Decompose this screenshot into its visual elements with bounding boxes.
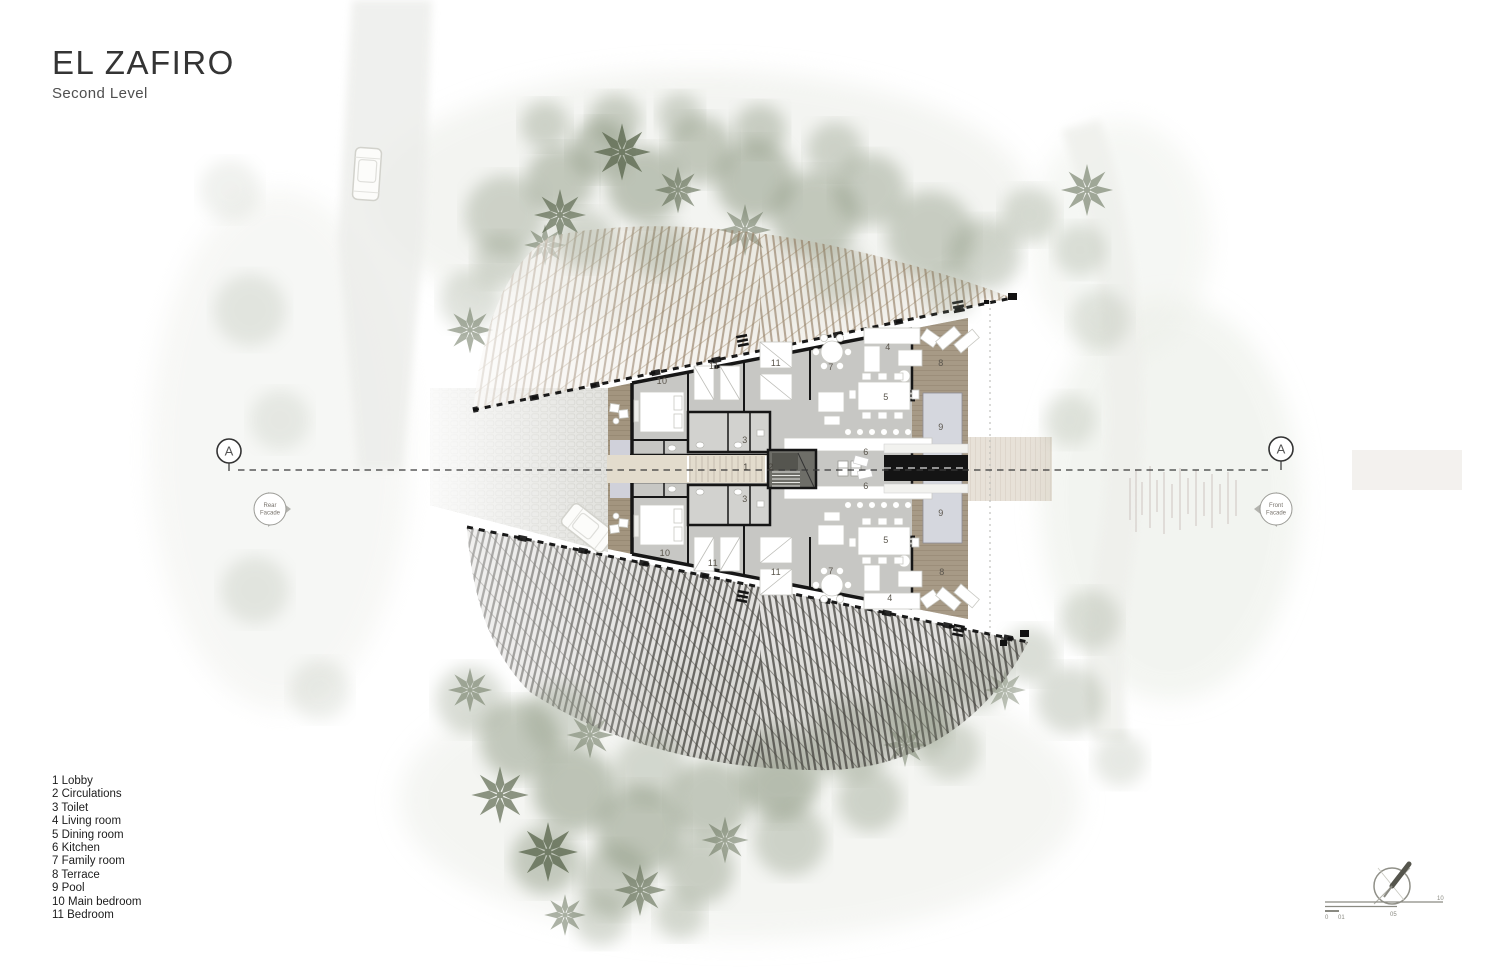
title-block: EL ZAFIRO Second Level [52, 44, 235, 102]
room-label-terrace: 8 [938, 358, 943, 368]
room-label-toilet: 3 [742, 494, 747, 504]
room-label-toilet: 3 [742, 435, 747, 445]
legend-item: 4 Living room [52, 815, 142, 828]
room-label-family-room: 7 [828, 362, 833, 372]
floor-plan-sheet: A A Rear Facade Front Facade 0 01 05 10 [0, 0, 1500, 971]
svg-text:Facade: Facade [260, 511, 281, 517]
room-label-bedroom: 11 [771, 567, 781, 577]
room-label-dining-room: 5 [883, 392, 888, 402]
site-plan: A A Rear Facade Front Facade 0 01 05 10 [0, 0, 1500, 971]
svg-text:05: 05 [1390, 912, 1397, 918]
room-label-main-bedroom: 10 [657, 376, 668, 386]
legend-item: 7 Family room [52, 855, 142, 868]
room-label-dining-room: 5 [883, 535, 888, 545]
room-label-kitchen: 6 [863, 481, 868, 491]
legend-item: 9 Pool [52, 882, 142, 895]
car-road [352, 147, 382, 201]
legend-item: 3 Toilet [52, 802, 142, 815]
far-jetty [1352, 450, 1462, 490]
room-label-pool: 9 [938, 508, 943, 518]
room-label-bedroom: 11 [709, 361, 719, 371]
lobby-corridor [607, 455, 790, 483]
north-arrow [1374, 864, 1410, 904]
legend-item: 2 Circulations [52, 788, 142, 801]
room-legend: 1 Lobby 2 Circulations 3 Toilet 4 Living… [52, 775, 142, 922]
room-label-lobby: 1 [743, 462, 748, 472]
pool-passage [884, 444, 968, 493]
room-label-main-bedroom: 10 [660, 548, 671, 558]
room-label-bedroom: 11 [771, 358, 781, 368]
svg-text:10: 10 [1437, 896, 1444, 902]
left-road [338, 0, 432, 470]
room-label-terrace: 8 [939, 567, 944, 577]
room-label-circulations: 2 [768, 462, 773, 472]
level-subtitle: Second Level [52, 85, 235, 102]
svg-text:Front: Front [1269, 503, 1283, 509]
room-label-bedroom: 11 [708, 558, 718, 568]
svg-text:Facade: Facade [1266, 511, 1287, 517]
section-marker-a-left-label: A [225, 444, 234, 459]
svg-text:0: 0 [1325, 915, 1329, 921]
room-label-kitchen: 6 [863, 447, 868, 457]
room-label-living-room: 4 [885, 342, 890, 352]
legend-item: 8 Terrace [52, 869, 142, 882]
project-title: EL ZAFIRO [52, 44, 235, 82]
legend-item: 5 Dining room [52, 829, 142, 842]
room-label-family-room: 7 [828, 566, 833, 576]
legend-item: 6 Kitchen [52, 842, 142, 855]
svg-text:01: 01 [1338, 915, 1345, 921]
svg-text:Rear: Rear [263, 503, 276, 509]
room-label-living-room: 4 [887, 593, 892, 603]
section-marker-a-right-label: A [1277, 442, 1286, 457]
room-label-pool: 9 [938, 422, 943, 432]
scale-bar: 0 01 05 10 [1325, 896, 1444, 921]
legend-item: 11 Bedroom [52, 909, 142, 922]
legend-item: 1 Lobby [52, 775, 142, 788]
legend-item: 10 Main bedroom [52, 896, 142, 909]
